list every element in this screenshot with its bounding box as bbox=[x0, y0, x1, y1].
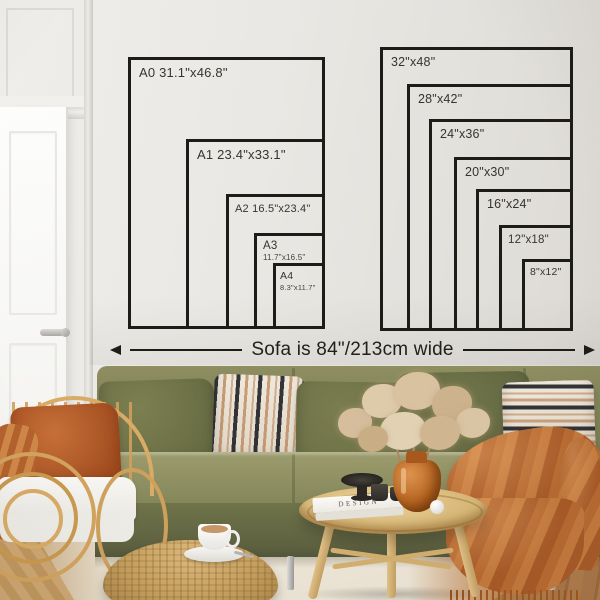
poster-size-guide-mockup: A0 31.1"x46.8" A1 23.4"x33.1" A2 16.5"x2… bbox=[0, 0, 600, 600]
size-label-a4: A4 bbox=[276, 266, 322, 283]
sofa-width-label: Sofa is 84"/213cm wide bbox=[251, 339, 453, 361]
arrowhead-left-icon bbox=[110, 345, 121, 355]
flower-blob bbox=[420, 416, 460, 450]
coffee-cup bbox=[198, 524, 231, 550]
size-label-12x18: 12"x18" bbox=[502, 228, 570, 247]
size-sublabel-a4: 8.3"x11.7" bbox=[276, 283, 322, 292]
size-label-a2: A2 16.5"x23.4" bbox=[229, 197, 322, 215]
size-label-16x24: 16"x24" bbox=[479, 192, 570, 212]
black-cup bbox=[371, 484, 388, 501]
table-leg bbox=[387, 528, 396, 598]
size-label-28x42: 28"x42" bbox=[410, 87, 570, 107]
size-label-a1: A1 23.4"x33.1" bbox=[189, 142, 322, 162]
door-frame-top bbox=[0, 96, 84, 107]
decor-ball bbox=[430, 500, 444, 514]
rattan-arm-ring bbox=[3, 489, 63, 549]
sofa-width-annotation: Sofa is 84"/213cm wide bbox=[110, 338, 595, 362]
size-label-20x30: 20"x30" bbox=[457, 160, 570, 180]
flower-blob bbox=[358, 426, 388, 452]
size-label-24x36: 24"x36" bbox=[432, 122, 570, 142]
flower-blob bbox=[456, 408, 490, 438]
pedestal-bowl-base bbox=[351, 495, 373, 501]
arrow-line-left bbox=[130, 349, 242, 351]
size-label-32x48: 32"x48" bbox=[383, 50, 570, 70]
sofa-leg bbox=[287, 556, 294, 590]
sofa-seat-seam bbox=[292, 454, 295, 504]
size-rect-8x12: 8"x12" bbox=[522, 259, 573, 331]
arrow-line-right bbox=[463, 349, 575, 351]
door-panel bbox=[9, 131, 57, 315]
door-handle bbox=[40, 329, 64, 336]
arrowhead-right-icon bbox=[584, 345, 595, 355]
size-sublabel-a3: 11.7"x16.5" bbox=[257, 253, 322, 262]
size-label-a0: A0 31.1"x46.8" bbox=[131, 60, 322, 80]
size-label-a3: A3 bbox=[257, 236, 322, 253]
size-label-8x12: 8"x12" bbox=[525, 262, 570, 279]
wall-panel-molding bbox=[6, 8, 74, 102]
size-rect-a4: A4 8.3"x11.7" bbox=[273, 263, 325, 329]
